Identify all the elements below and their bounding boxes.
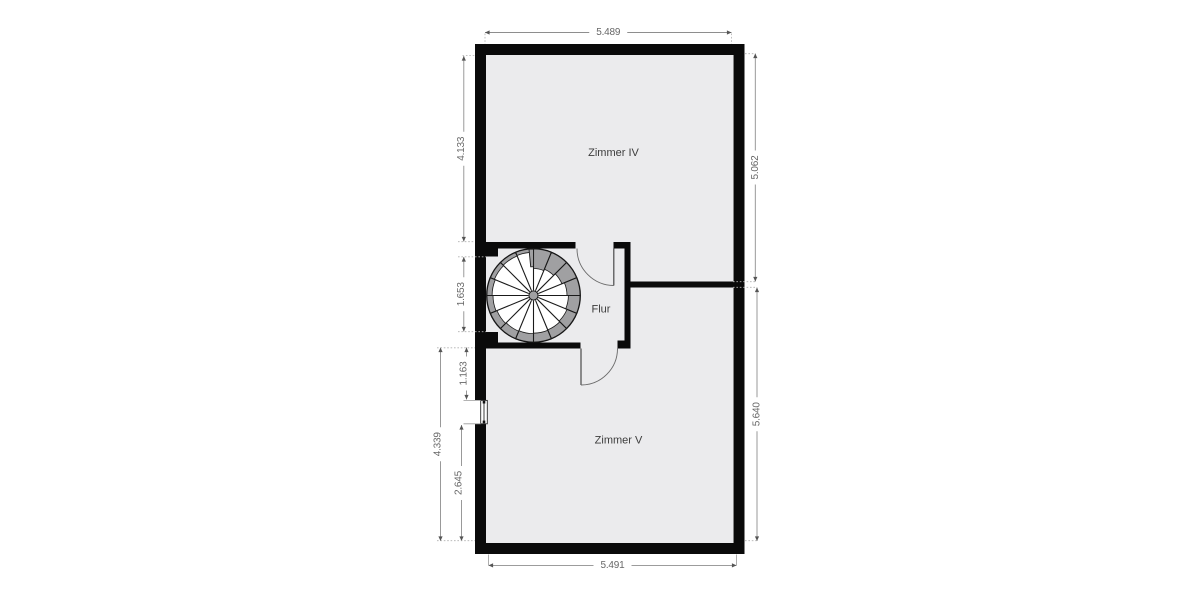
svg-text:Zimmer V: Zimmer V: [595, 435, 643, 447]
svg-text:Flur: Flur: [592, 304, 611, 316]
svg-text:5.640: 5.640: [752, 402, 763, 427]
svg-text:5.491: 5.491: [600, 560, 625, 571]
svg-text:2.645: 2.645: [454, 470, 465, 495]
svg-text:5.062: 5.062: [750, 155, 761, 180]
svg-text:4.133: 4.133: [456, 136, 467, 161]
svg-text:Zimmer IV: Zimmer IV: [588, 147, 639, 159]
svg-text:1.653: 1.653: [456, 282, 467, 307]
svg-text:4.339: 4.339: [433, 432, 444, 457]
svg-text:5.489: 5.489: [596, 27, 621, 38]
svg-text:1.163: 1.163: [459, 361, 470, 386]
